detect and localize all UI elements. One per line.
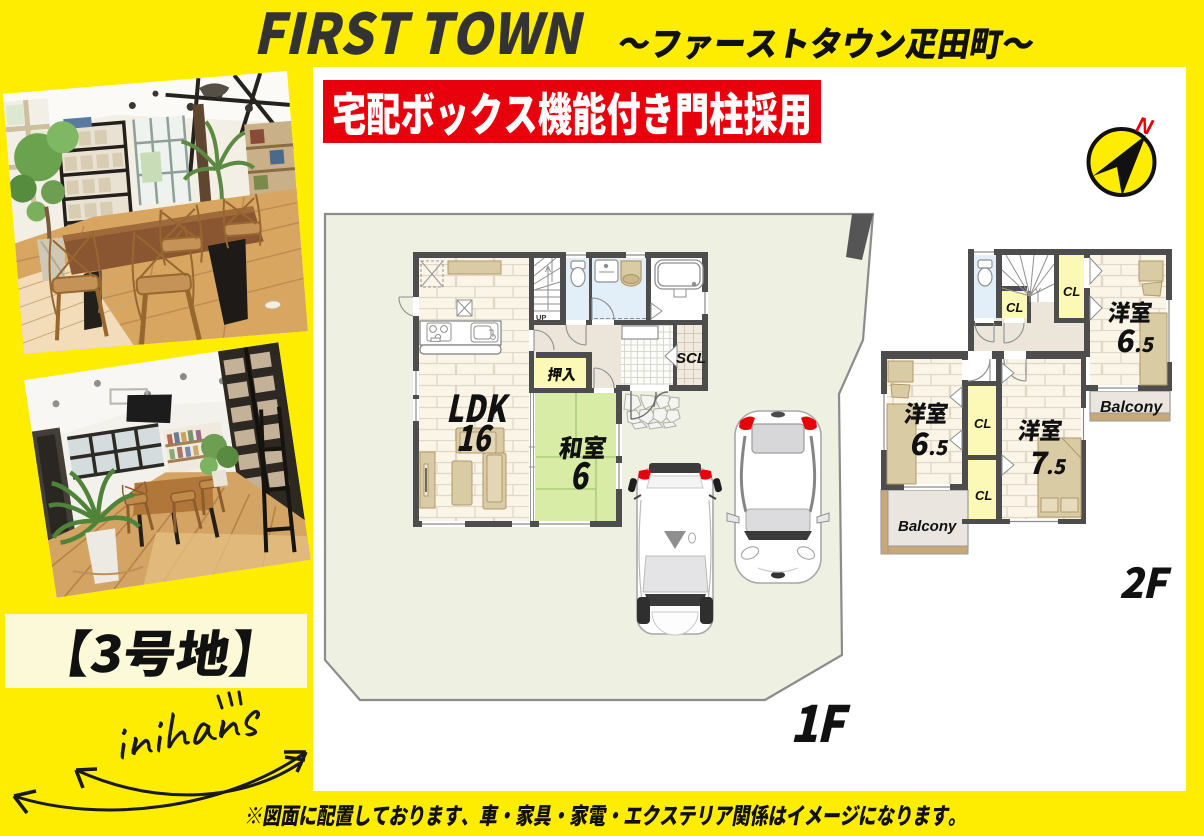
svg-text:N: N [1133, 111, 1156, 140]
svg-text:CL: CL [1063, 284, 1080, 299]
svg-text:Balcony: Balcony [898, 518, 957, 535]
svg-text:Balcony: Balcony [1100, 399, 1163, 416]
svg-text:CL: CL [974, 416, 991, 431]
svg-text:UP: UP [536, 313, 546, 322]
svg-text:CL: CL [975, 488, 992, 503]
svg-text:SCL: SCL [676, 350, 706, 367]
svg-text:CL: CL [1006, 300, 1023, 315]
